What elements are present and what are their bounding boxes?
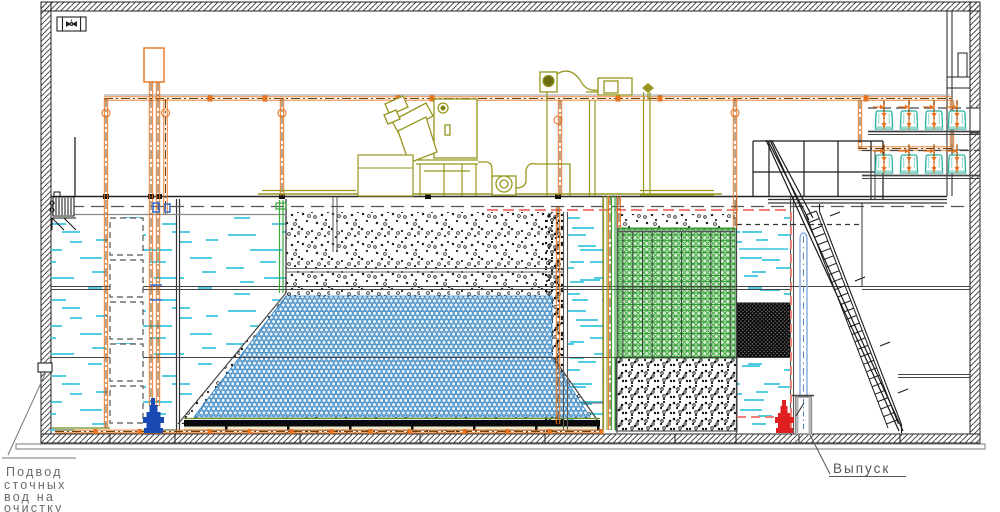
svg-text:очистку: очистку: [4, 501, 63, 512]
svg-text:Подвод: Подвод: [6, 465, 63, 479]
svg-text:Выпуск: Выпуск: [833, 461, 890, 476]
